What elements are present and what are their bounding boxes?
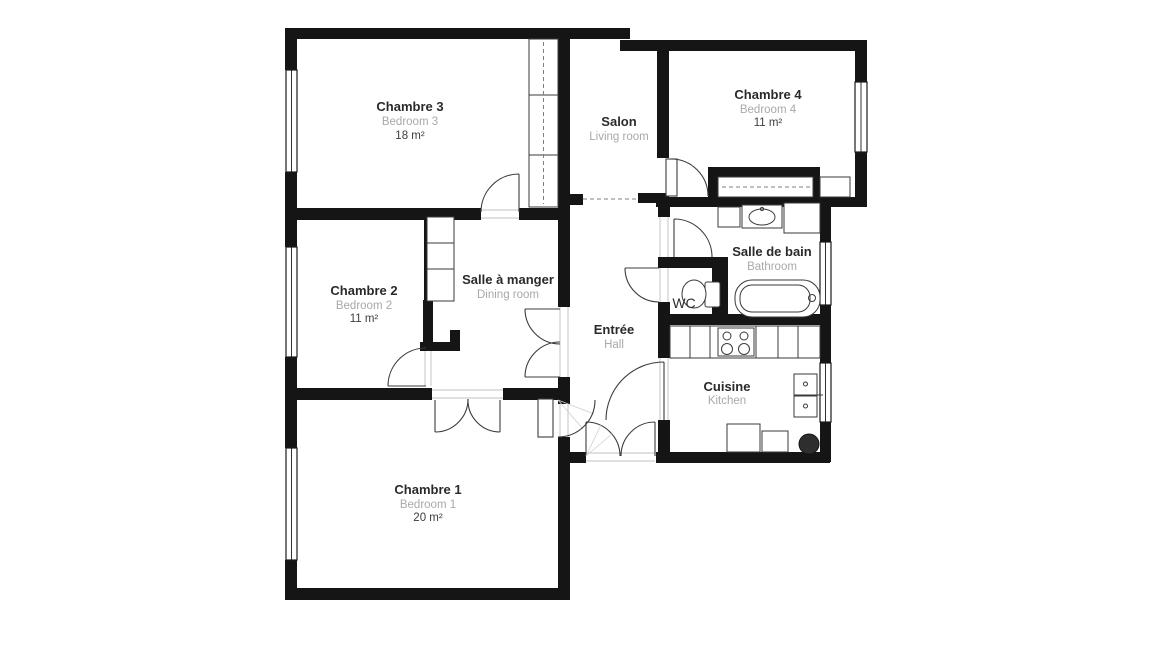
closet-chambre4 [718, 177, 850, 197]
room-label-chambre4: Chambre 4 Bedroom 4 11 m² [734, 87, 802, 129]
room-name: Chambre 2 [330, 283, 397, 298]
window-chambre3 [286, 70, 297, 172]
window-chambre2 [286, 247, 297, 357]
room-area: 11 m² [754, 117, 783, 129]
bathroom-cabinet-small [718, 207, 740, 227]
room-label-chambre1: Chambre 1 Bedroom 1 20 m² [394, 482, 461, 524]
closet-chambre3 [529, 39, 558, 207]
room-label-kitchen: Cuisine Kitchen [704, 379, 751, 407]
room-subtitle: Living room [589, 131, 648, 143]
room-name: Chambre 3 [376, 99, 443, 114]
door-entrance-double [586, 422, 655, 456]
room-label-bathroom: Salle de bain Bathroom [732, 244, 812, 273]
room-name: Salle à manger [462, 272, 554, 287]
door-bathroom [674, 219, 712, 257]
door-wc [625, 268, 659, 302]
room-name: Salle de bain [732, 244, 812, 259]
bathroom-cabinet [784, 203, 820, 233]
floor-plan: Chambre 3 Bedroom 3 18 m² Salon Living r… [0, 0, 1152, 648]
room-area: 18 m² [395, 130, 425, 142]
room-subtitle: Bedroom 2 [336, 300, 392, 312]
kitchen-lower-cabinets [727, 424, 788, 452]
room-name: Chambre 4 [734, 87, 802, 102]
fixtures [670, 203, 823, 454]
room-subtitle: Bedroom 4 [740, 104, 797, 116]
room-name: Cuisine [704, 379, 751, 394]
stove [718, 328, 754, 356]
room-name: Salon [601, 114, 636, 129]
room-subtitle: Dining room [477, 289, 539, 301]
door-chambre1-double [435, 399, 500, 432]
water-heater [799, 434, 819, 454]
door-kitchen [606, 362, 664, 420]
room-subtitle: Kitchen [708, 395, 746, 407]
window-bathroom [820, 242, 831, 305]
window-chambre4 [855, 82, 867, 152]
door-chambre3 [481, 174, 519, 212]
door-chambre2 [388, 348, 426, 386]
window-chambre1 [286, 448, 297, 560]
closet-dining [427, 217, 454, 301]
door-chambre4 [666, 159, 708, 196]
room-label-wc: WC [672, 295, 695, 311]
door-dining-double [525, 309, 560, 377]
room-label-dining: Salle à manger Dining room [462, 272, 554, 301]
room-label-salon: Salon Living room [589, 114, 648, 143]
bathroom-sink [742, 205, 782, 228]
kitchen-sink [794, 374, 823, 417]
room-subtitle: Bedroom 1 [400, 499, 456, 511]
room-name: Entrée [594, 322, 634, 337]
room-subtitle: Bathroom [747, 261, 797, 273]
room-subtitle: Bedroom 3 [382, 116, 438, 128]
room-label-chambre2: Chambre 2 Bedroom 2 11 m² [330, 283, 397, 325]
room-area: 20 m² [413, 512, 443, 524]
window-kitchen [820, 363, 831, 422]
room-name: WC [672, 295, 695, 311]
bathtub [735, 280, 820, 317]
room-subtitle: Hall [604, 339, 624, 351]
room-label-hall: Entrée Hall [594, 322, 634, 351]
room-label-chambre3: Chambre 3 Bedroom 3 18 m² [376, 99, 443, 142]
room-area: 11 m² [350, 313, 379, 325]
floor-plan-page: Chambre 3 Bedroom 3 18 m² Salon Living r… [0, 0, 1152, 648]
room-name: Chambre 1 [394, 482, 461, 497]
